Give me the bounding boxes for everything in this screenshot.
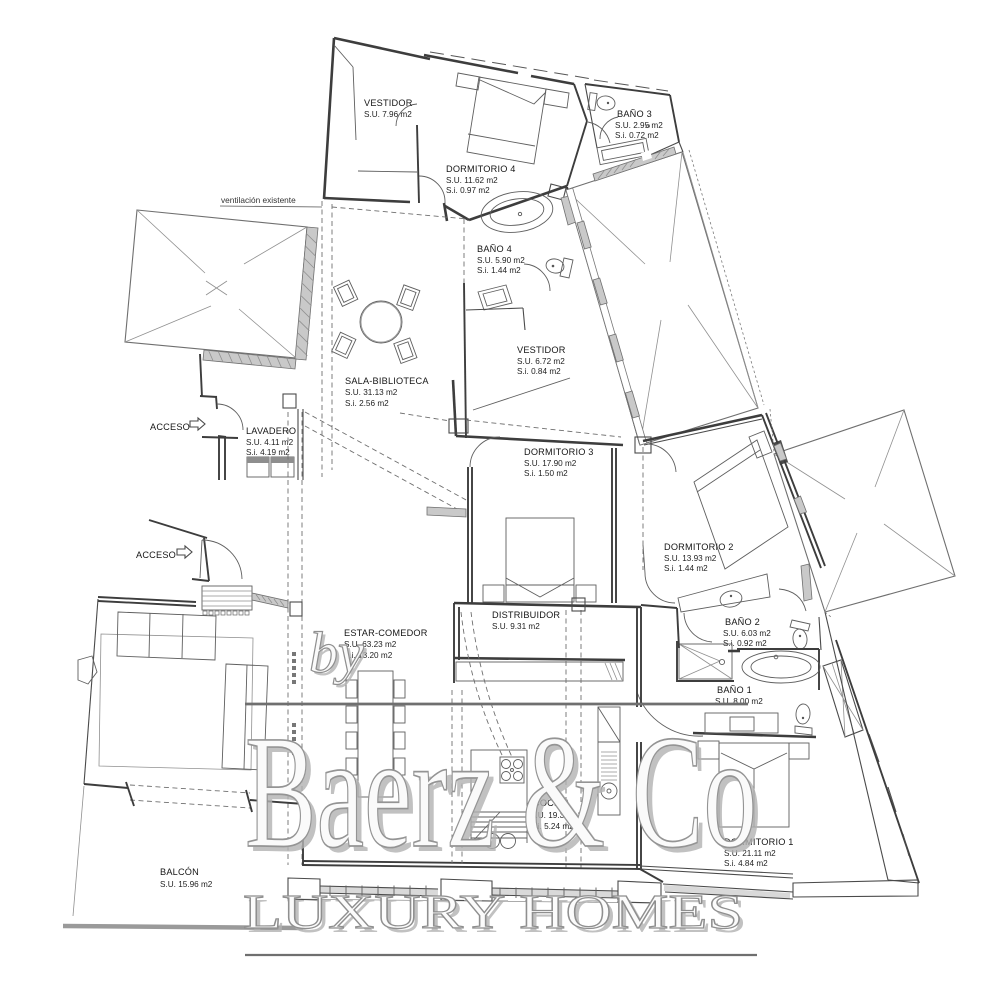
svg-text:S.i. 0.84 m2: S.i. 0.84 m2 <box>517 367 561 376</box>
svg-text:VESTIDOR: VESTIDOR <box>364 98 413 108</box>
svg-text:S.U. 6.72 m2: S.U. 6.72 m2 <box>517 357 565 366</box>
svg-text:S.U. 9.31 m2: S.U. 9.31 m2 <box>492 622 540 631</box>
svg-text:S.i. 2.56 m2: S.i. 2.56 m2 <box>345 399 389 408</box>
svg-text:BAÑO 3: BAÑO 3 <box>617 109 652 119</box>
svg-text:S.U. 13.93 m2: S.U. 13.93 m2 <box>664 554 717 563</box>
svg-text:S.U. 17.90 m2: S.U. 17.90 m2 <box>524 459 577 468</box>
svg-text:DORMITORIO 2: DORMITORIO 2 <box>664 542 734 552</box>
svg-text:S.U. 6.03 m2: S.U. 6.03 m2 <box>723 629 771 638</box>
svg-text:DORMITORIO 4: DORMITORIO 4 <box>446 164 516 174</box>
svg-text:ventilación existente: ventilación existente <box>221 195 296 205</box>
svg-text:S.U. 15.96 m2: S.U. 15.96 m2 <box>160 880 213 889</box>
svg-text:S.i. 1.44 m2: S.i. 1.44 m2 <box>664 564 708 573</box>
svg-text:S.U. 5.90 m2: S.U. 5.90 m2 <box>477 256 525 265</box>
svg-text:S.i. 1.44 m2: S.i. 1.44 m2 <box>477 266 521 275</box>
svg-text:ACCESO: ACCESO <box>136 550 176 560</box>
svg-text:S.i. 1.50 m2: S.i. 1.50 m2 <box>524 469 568 478</box>
svg-text:SALA-BIBLIOTECA: SALA-BIBLIOTECA <box>345 376 429 386</box>
svg-text:DISTRIBUIDOR: DISTRIBUIDOR <box>492 610 560 620</box>
svg-text:LAVADERO: LAVADERO <box>246 426 296 436</box>
svg-text:LUXURY HOMES: LUXURY HOMES <box>243 884 743 939</box>
svg-text:Baerz & Co: Baerz & Co <box>245 703 757 882</box>
svg-text:S.U. 31.13 m2: S.U. 31.13 m2 <box>345 388 398 397</box>
svg-text:S.i. 0.72 m2: S.i. 0.72 m2 <box>615 131 659 140</box>
svg-text:S.i. 0.97 m2: S.i. 0.97 m2 <box>446 186 490 195</box>
svg-text:BALCÓN: BALCÓN <box>160 867 199 877</box>
svg-text:BAÑO 1: BAÑO 1 <box>717 685 752 695</box>
svg-text:ACCESO: ACCESO <box>150 422 190 432</box>
svg-text:BAÑO 2: BAÑO 2 <box>725 617 760 627</box>
svg-text:VESTIDOR: VESTIDOR <box>517 345 566 355</box>
svg-text:S.U. 11.62 m2: S.U. 11.62 m2 <box>446 176 498 185</box>
svg-text:by: by <box>309 620 364 685</box>
svg-text:S.i. 0.92 m2: S.i. 0.92 m2 <box>723 639 767 648</box>
svg-text:BAÑO 4: BAÑO 4 <box>477 244 512 254</box>
svg-text:S.i. 4.19 m2: S.i. 4.19 m2 <box>246 448 290 457</box>
svg-text:DORMITORIO 3: DORMITORIO 3 <box>524 447 594 457</box>
svg-text:S.U. 4.11 m2: S.U. 4.11 m2 <box>246 438 294 447</box>
svg-text:S.U. 7.96 m2: S.U. 7.96 m2 <box>364 110 412 119</box>
svg-text:S.U. 2.95 m2: S.U. 2.95 m2 <box>615 121 663 130</box>
